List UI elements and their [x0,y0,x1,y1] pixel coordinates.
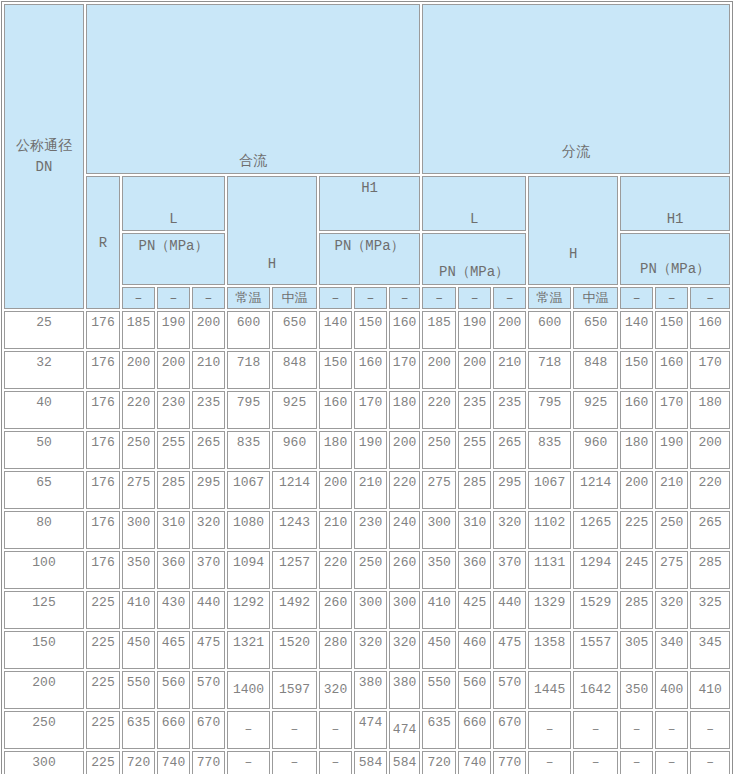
value-cell: 250 [354,551,387,589]
value-cell: 190 [655,431,688,469]
pn-dash-header: – [157,287,190,309]
value-cell: – [655,751,688,774]
value-cell: 300 [354,591,387,629]
pn-dash-header: – [493,287,526,309]
value-cell: 300 [122,511,155,549]
value-cell: 600 [528,311,571,349]
value-cell: 1131 [528,551,571,589]
value-cell: 718 [528,351,571,389]
value-cell: 170 [690,351,730,389]
pn-dash-header: – [319,287,352,309]
value-cell: 440 [493,591,526,629]
value-cell: 150 [655,311,688,349]
value-cell: 160 [655,351,688,389]
value-cell: 848 [272,351,317,389]
value-cell: 925 [272,391,317,429]
value-cell: 560 [157,671,190,709]
subheader-merge-h1-pn: PN（MPa） [319,233,420,285]
value-cell: 310 [458,511,491,549]
value-cell: – [573,711,618,749]
value-cell: 295 [192,471,225,509]
value-cell: 210 [319,511,352,549]
value-cell: 340 [655,631,688,669]
value-cell: – [655,711,688,749]
value-cell: 360 [458,551,491,589]
value-cell: 280 [319,631,352,669]
value-cell: 450 [122,631,155,669]
value-cell: 160 [690,311,730,349]
value-cell: 176 [86,511,120,549]
value-cell: 180 [690,391,730,429]
value-cell: – [690,711,730,749]
value-cell: 550 [422,671,456,709]
value-cell: 1445 [528,671,571,709]
value-cell: 170 [389,351,420,389]
value-cell: 220 [422,391,456,429]
value-cell: 1214 [272,471,317,509]
value-cell: 370 [493,551,526,589]
value-cell: 150 [620,351,653,389]
table-row: 1252254104304401292149226030030041042544… [4,591,730,629]
value-cell: 550 [122,671,155,709]
value-cell: 176 [86,311,120,349]
value-cell: 176 [86,391,120,429]
value-cell: 185 [422,311,456,349]
value-cell: 650 [272,311,317,349]
value-cell: 570 [493,671,526,709]
value-cell: 295 [493,471,526,509]
pn-dash-header: – [422,287,456,309]
value-cell: 176 [86,351,120,389]
dn-cell: 100 [4,551,84,589]
value-cell: 260 [319,591,352,629]
value-cell: 176 [86,431,120,469]
value-cell: 345 [690,631,730,669]
value-cell: 176 [86,471,120,509]
pn-dash-header: – [389,287,420,309]
value-cell: 1294 [573,551,618,589]
value-cell: 180 [620,431,653,469]
value-cell: 720 [422,751,456,774]
col-header-merge-h1: H1 [319,176,420,231]
value-cell: 350 [620,671,653,709]
value-cell: 1257 [272,551,317,589]
value-cell: 220 [122,391,155,429]
value-cell: 230 [354,511,387,549]
dn-cell: 40 [4,391,84,429]
value-cell: 200 [319,471,352,509]
corner-header-dn: 公称通径 DN [4,4,84,309]
value-cell: 275 [422,471,456,509]
value-cell: 560 [458,671,491,709]
value-cell: 835 [528,431,571,469]
value-cell: 200 [122,351,155,389]
dn-cell: 125 [4,591,84,629]
group-header-merge-flow: 合流 [86,4,420,174]
value-cell: 230 [157,391,190,429]
col-header-merge-h: H [227,176,317,285]
value-cell: 835 [227,431,270,469]
value-cell: 210 [354,471,387,509]
value-cell: – [272,711,317,749]
value-cell: 1243 [272,511,317,549]
flow-spec-table: 公称通径 DN 合流 分流 R L H H1 L H H1 PN（MPa） PN… [2,2,732,774]
value-cell: 380 [354,671,387,709]
table-row: 5017625025526583596018019020025025526583… [4,431,730,469]
value-cell: 1094 [227,551,270,589]
value-cell: – [620,711,653,749]
value-cell: – [528,711,571,749]
value-cell: 1358 [528,631,571,669]
value-cell: 310 [157,511,190,549]
value-cell: 150 [319,351,352,389]
value-cell: 210 [192,351,225,389]
value-cell: 210 [493,351,526,389]
subheader-split-l-pn: PN（MPa） [422,233,526,285]
value-cell: 720 [122,751,155,774]
value-cell: 960 [573,431,618,469]
value-cell: 1067 [528,471,571,509]
value-cell: 1067 [227,471,270,509]
value-cell: 210 [655,471,688,509]
value-cell: 250 [655,511,688,549]
col-header-merge-l: L [122,176,225,231]
value-cell: 185 [122,311,155,349]
value-cell: 320 [192,511,225,549]
value-cell: 225 [620,511,653,549]
value-cell: 225 [86,631,120,669]
dn-cell: 32 [4,351,84,389]
pn-dash-header: – [192,287,225,309]
value-cell: 265 [192,431,225,469]
value-cell: 275 [122,471,155,509]
value-cell: 320 [655,591,688,629]
value-cell: 250 [422,431,456,469]
value-cell: 440 [192,591,225,629]
value-cell: 600 [227,311,270,349]
table-row: 300225720740770–––584584720740770––––– [4,751,730,774]
value-cell: 180 [319,431,352,469]
subheader-split-h1-pn: PN（MPa） [620,233,730,285]
value-cell: 150 [354,311,387,349]
value-cell: 190 [157,311,190,349]
col-header-split-l: L [422,176,526,231]
table-row: 1001763503603701094125722025026035036037… [4,551,730,589]
value-cell: 740 [458,751,491,774]
value-cell: 255 [458,431,491,469]
dn-cell: 25 [4,311,84,349]
value-cell: 235 [458,391,491,429]
value-cell: 140 [319,311,352,349]
value-cell: 275 [655,551,688,589]
value-cell: 1597 [272,671,317,709]
table-body: 2517618519020060065014015016018519020060… [4,311,730,774]
value-cell: 1265 [573,511,618,549]
value-cell: 360 [157,551,190,589]
value-cell: 255 [157,431,190,469]
value-cell: 1329 [528,591,571,629]
value-cell: 1492 [272,591,317,629]
value-cell: – [227,711,270,749]
value-cell: – [227,751,270,774]
value-cell: 320 [354,631,387,669]
value-cell: 1080 [227,511,270,549]
value-cell: 1400 [227,671,270,709]
value-cell: – [272,751,317,774]
value-cell: 1557 [573,631,618,669]
table-row: 3217620020021071884815016017020020021071… [4,351,730,389]
pn-dash-header: – [690,287,730,309]
temp-header-normal: 常温 [227,287,270,309]
value-cell: 200 [690,431,730,469]
value-cell: 160 [389,311,420,349]
value-cell: 200 [493,311,526,349]
value-cell: 180 [389,391,420,429]
value-cell: 320 [493,511,526,549]
table-header: 公称通径 DN 合流 分流 R L H H1 L H H1 PN（MPa） PN… [4,4,730,309]
dn-cell: 150 [4,631,84,669]
value-cell: 475 [493,631,526,669]
value-cell: 285 [458,471,491,509]
value-cell: 200 [458,351,491,389]
value-cell: 240 [389,511,420,549]
value-cell: 325 [690,591,730,629]
dn-cell: 250 [4,711,84,749]
value-cell: 305 [620,631,653,669]
group-header-split-flow: 分流 [422,4,730,174]
pn-dash-header: – [122,287,155,309]
col-header-split-h: H [528,176,618,285]
value-cell: 635 [422,711,456,749]
table-row: 2517618519020060065014015016018519020060… [4,311,730,349]
value-cell: – [690,751,730,774]
spec-table-wrapper: 公称通径 DN 合流 分流 R L H H1 L H H1 PN（MPa） PN… [1,1,733,774]
table-row: 6517627528529510671214200210220275285295… [4,471,730,509]
dn-cell: 200 [4,671,84,709]
value-cell: 740 [157,751,190,774]
value-cell: 848 [573,351,618,389]
value-cell: 410 [690,671,730,709]
value-cell: 475 [192,631,225,669]
value-cell: 584 [389,751,420,774]
value-cell: 925 [573,391,618,429]
col-header-r: R [86,176,120,309]
value-cell: – [528,751,571,774]
value-cell: 770 [192,751,225,774]
value-cell: 200 [192,311,225,349]
dn-cell: 300 [4,751,84,774]
value-cell: 1529 [573,591,618,629]
value-cell: 160 [620,391,653,429]
value-cell: 190 [458,311,491,349]
value-cell: 410 [422,591,456,629]
temp-header-medium: 中温 [573,287,618,309]
value-cell: 265 [493,431,526,469]
value-cell: 474 [389,711,420,749]
pn-dash-header: – [655,287,688,309]
value-cell: 225 [86,591,120,629]
value-cell: 960 [272,431,317,469]
value-cell: 430 [157,591,190,629]
pn-dash-header: – [620,287,653,309]
value-cell: 220 [319,551,352,589]
dn-cell: 65 [4,471,84,509]
value-cell: 660 [157,711,190,749]
value-cell: 285 [620,591,653,629]
value-cell: 300 [389,591,420,629]
value-cell: 350 [422,551,456,589]
value-cell: 170 [354,391,387,429]
temp-header-normal: 常温 [528,287,571,309]
value-cell: – [573,751,618,774]
value-cell: 285 [690,551,730,589]
value-cell: 200 [620,471,653,509]
value-cell: 635 [122,711,155,749]
value-cell: 235 [192,391,225,429]
value-cell: 425 [458,591,491,629]
table-row: 250225635660670–––474474635660670––––– [4,711,730,749]
value-cell: 465 [157,631,190,669]
value-cell: 265 [690,511,730,549]
value-cell: 1321 [227,631,270,669]
value-cell: 350 [122,551,155,589]
value-cell: 190 [354,431,387,469]
value-cell: 200 [389,431,420,469]
subheader-merge-l-pn: PN（MPa） [122,233,225,285]
value-cell: 225 [86,671,120,709]
value-cell: 795 [528,391,571,429]
value-cell: 770 [493,751,526,774]
value-cell: 320 [389,631,420,669]
value-cell: 670 [192,711,225,749]
value-cell: – [319,711,352,749]
value-cell: 250 [122,431,155,469]
table-row: 8017630031032010801243210230240300310320… [4,511,730,549]
value-cell: 235 [493,391,526,429]
value-cell: 200 [422,351,456,389]
value-cell: 320 [319,671,352,709]
value-cell: 245 [620,551,653,589]
value-cell: 370 [192,551,225,589]
table-row: 1502254504654751321152028032032045046047… [4,631,730,669]
pn-dash-header: – [458,287,491,309]
temp-header-medium: 中温 [272,287,317,309]
value-cell: 225 [86,751,120,774]
value-cell: 140 [620,311,653,349]
value-cell: – [620,751,653,774]
value-cell: 300 [422,511,456,549]
value-cell: 460 [458,631,491,669]
value-cell: 400 [655,671,688,709]
value-cell: 380 [389,671,420,709]
value-cell: 718 [227,351,270,389]
value-cell: 795 [227,391,270,429]
value-cell: 1642 [573,671,618,709]
value-cell: 176 [86,551,120,589]
value-cell: 660 [458,711,491,749]
value-cell: 570 [192,671,225,709]
pn-dash-header: – [354,287,387,309]
value-cell: 260 [389,551,420,589]
value-cell: 650 [573,311,618,349]
value-cell: 474 [354,711,387,749]
value-cell: 160 [319,391,352,429]
value-cell: 1102 [528,511,571,549]
value-cell: 410 [122,591,155,629]
dn-cell: 50 [4,431,84,469]
value-cell: 220 [690,471,730,509]
value-cell: 450 [422,631,456,669]
table-row: 2002255505605701400159732038038055056057… [4,671,730,709]
value-cell: 1520 [272,631,317,669]
col-header-split-h1: H1 [620,176,730,231]
value-cell: 200 [157,351,190,389]
value-cell: 1214 [573,471,618,509]
value-cell: 285 [157,471,190,509]
value-cell: 670 [493,711,526,749]
value-cell: 170 [655,391,688,429]
value-cell: – [319,751,352,774]
value-cell: 584 [354,751,387,774]
value-cell: 160 [354,351,387,389]
value-cell: 1292 [227,591,270,629]
value-cell: 220 [389,471,420,509]
value-cell: 225 [86,711,120,749]
dn-cell: 80 [4,511,84,549]
table-row: 4017622023023579592516017018022023523579… [4,391,730,429]
